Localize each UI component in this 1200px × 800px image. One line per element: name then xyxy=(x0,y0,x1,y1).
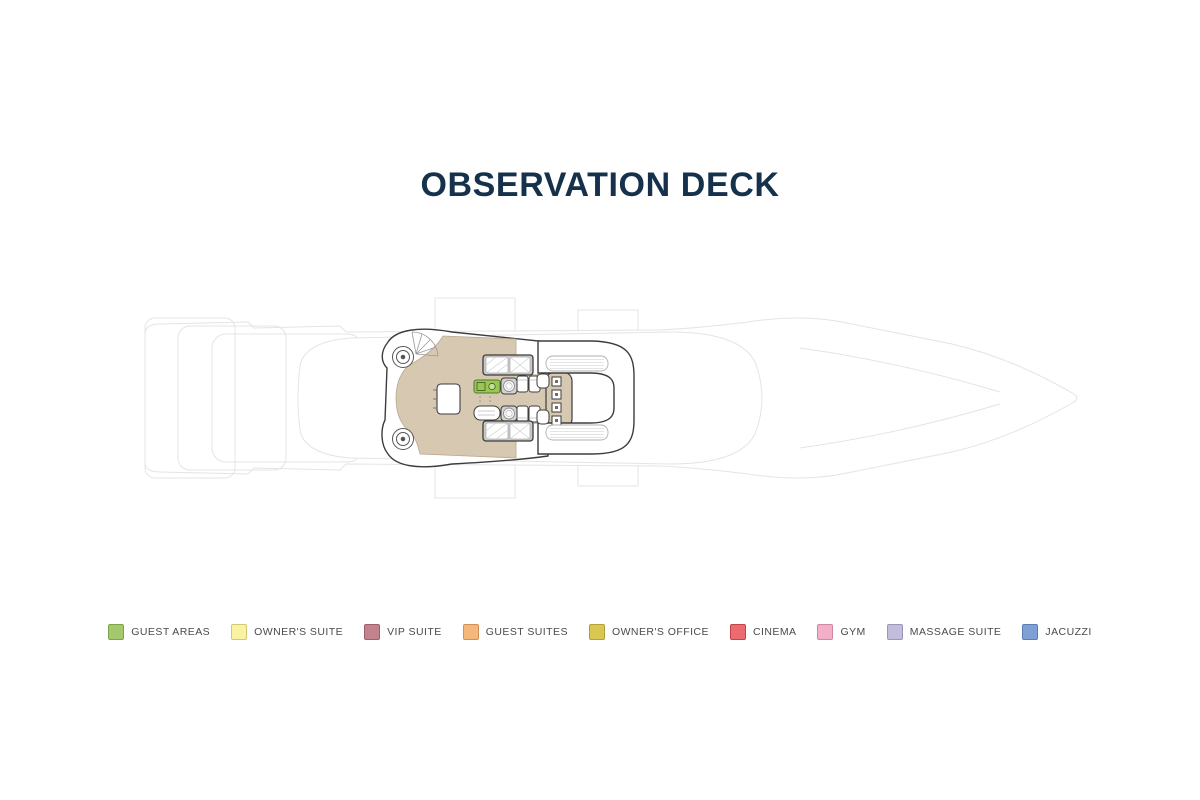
legend-swatch xyxy=(817,624,833,640)
legend-swatch xyxy=(887,624,903,640)
legend-swatch xyxy=(108,624,124,640)
deck-chair xyxy=(537,410,549,424)
legend-item: OWNER'S OFFICE xyxy=(589,624,709,640)
deck-opening xyxy=(437,384,460,414)
legend-label: GUEST SUITES xyxy=(486,626,568,638)
deck-tab xyxy=(435,464,515,498)
legend-label: GUEST AREAS xyxy=(131,626,210,638)
legend-label: VIP SUITE xyxy=(387,626,442,638)
deck-tab xyxy=(435,298,515,332)
bar-stool xyxy=(489,383,495,389)
legend-label: CINEMA xyxy=(753,626,797,638)
legend-item: CINEMA xyxy=(730,624,797,640)
legend-item: GUEST SUITES xyxy=(463,624,568,640)
deck-chair xyxy=(537,374,549,388)
legend-item: MASSAGE SUITE xyxy=(887,624,1002,640)
yacht-deck-plan xyxy=(100,270,1100,530)
legend-label: OWNER'S SUITE xyxy=(254,626,343,638)
legend-swatch xyxy=(463,624,479,640)
legend-item: JACUZZI xyxy=(1022,624,1091,640)
legend-swatch xyxy=(364,624,380,640)
legend-label: GYM xyxy=(840,626,865,638)
legend-label: MASSAGE SUITE xyxy=(910,626,1002,638)
legend-item: VIP SUITE xyxy=(364,624,442,640)
page-title: OBSERVATION DECK xyxy=(0,166,1200,205)
deck-tab xyxy=(578,310,638,332)
hull-outline-group xyxy=(145,298,1077,498)
guest-area-bar-unit xyxy=(474,380,500,393)
lounge-sofa xyxy=(474,406,500,420)
legend-label: OWNER'S OFFICE xyxy=(612,626,709,638)
yacht-deck-plan-illustration xyxy=(100,270,1100,530)
legend-item: GUEST AREAS xyxy=(108,624,210,640)
legend-label: JACUZZI xyxy=(1045,626,1091,638)
legend-swatch xyxy=(1022,624,1038,640)
legend-swatch xyxy=(730,624,746,640)
legend-swatch xyxy=(231,624,247,640)
legend: GUEST AREAS OWNER'S SUITE VIP SUITE GUES… xyxy=(0,619,1200,645)
legend-item: GYM xyxy=(817,624,865,640)
deck-tab xyxy=(578,464,638,486)
legend-swatch xyxy=(589,624,605,640)
legend-item: OWNER'S SUITE xyxy=(231,624,343,640)
